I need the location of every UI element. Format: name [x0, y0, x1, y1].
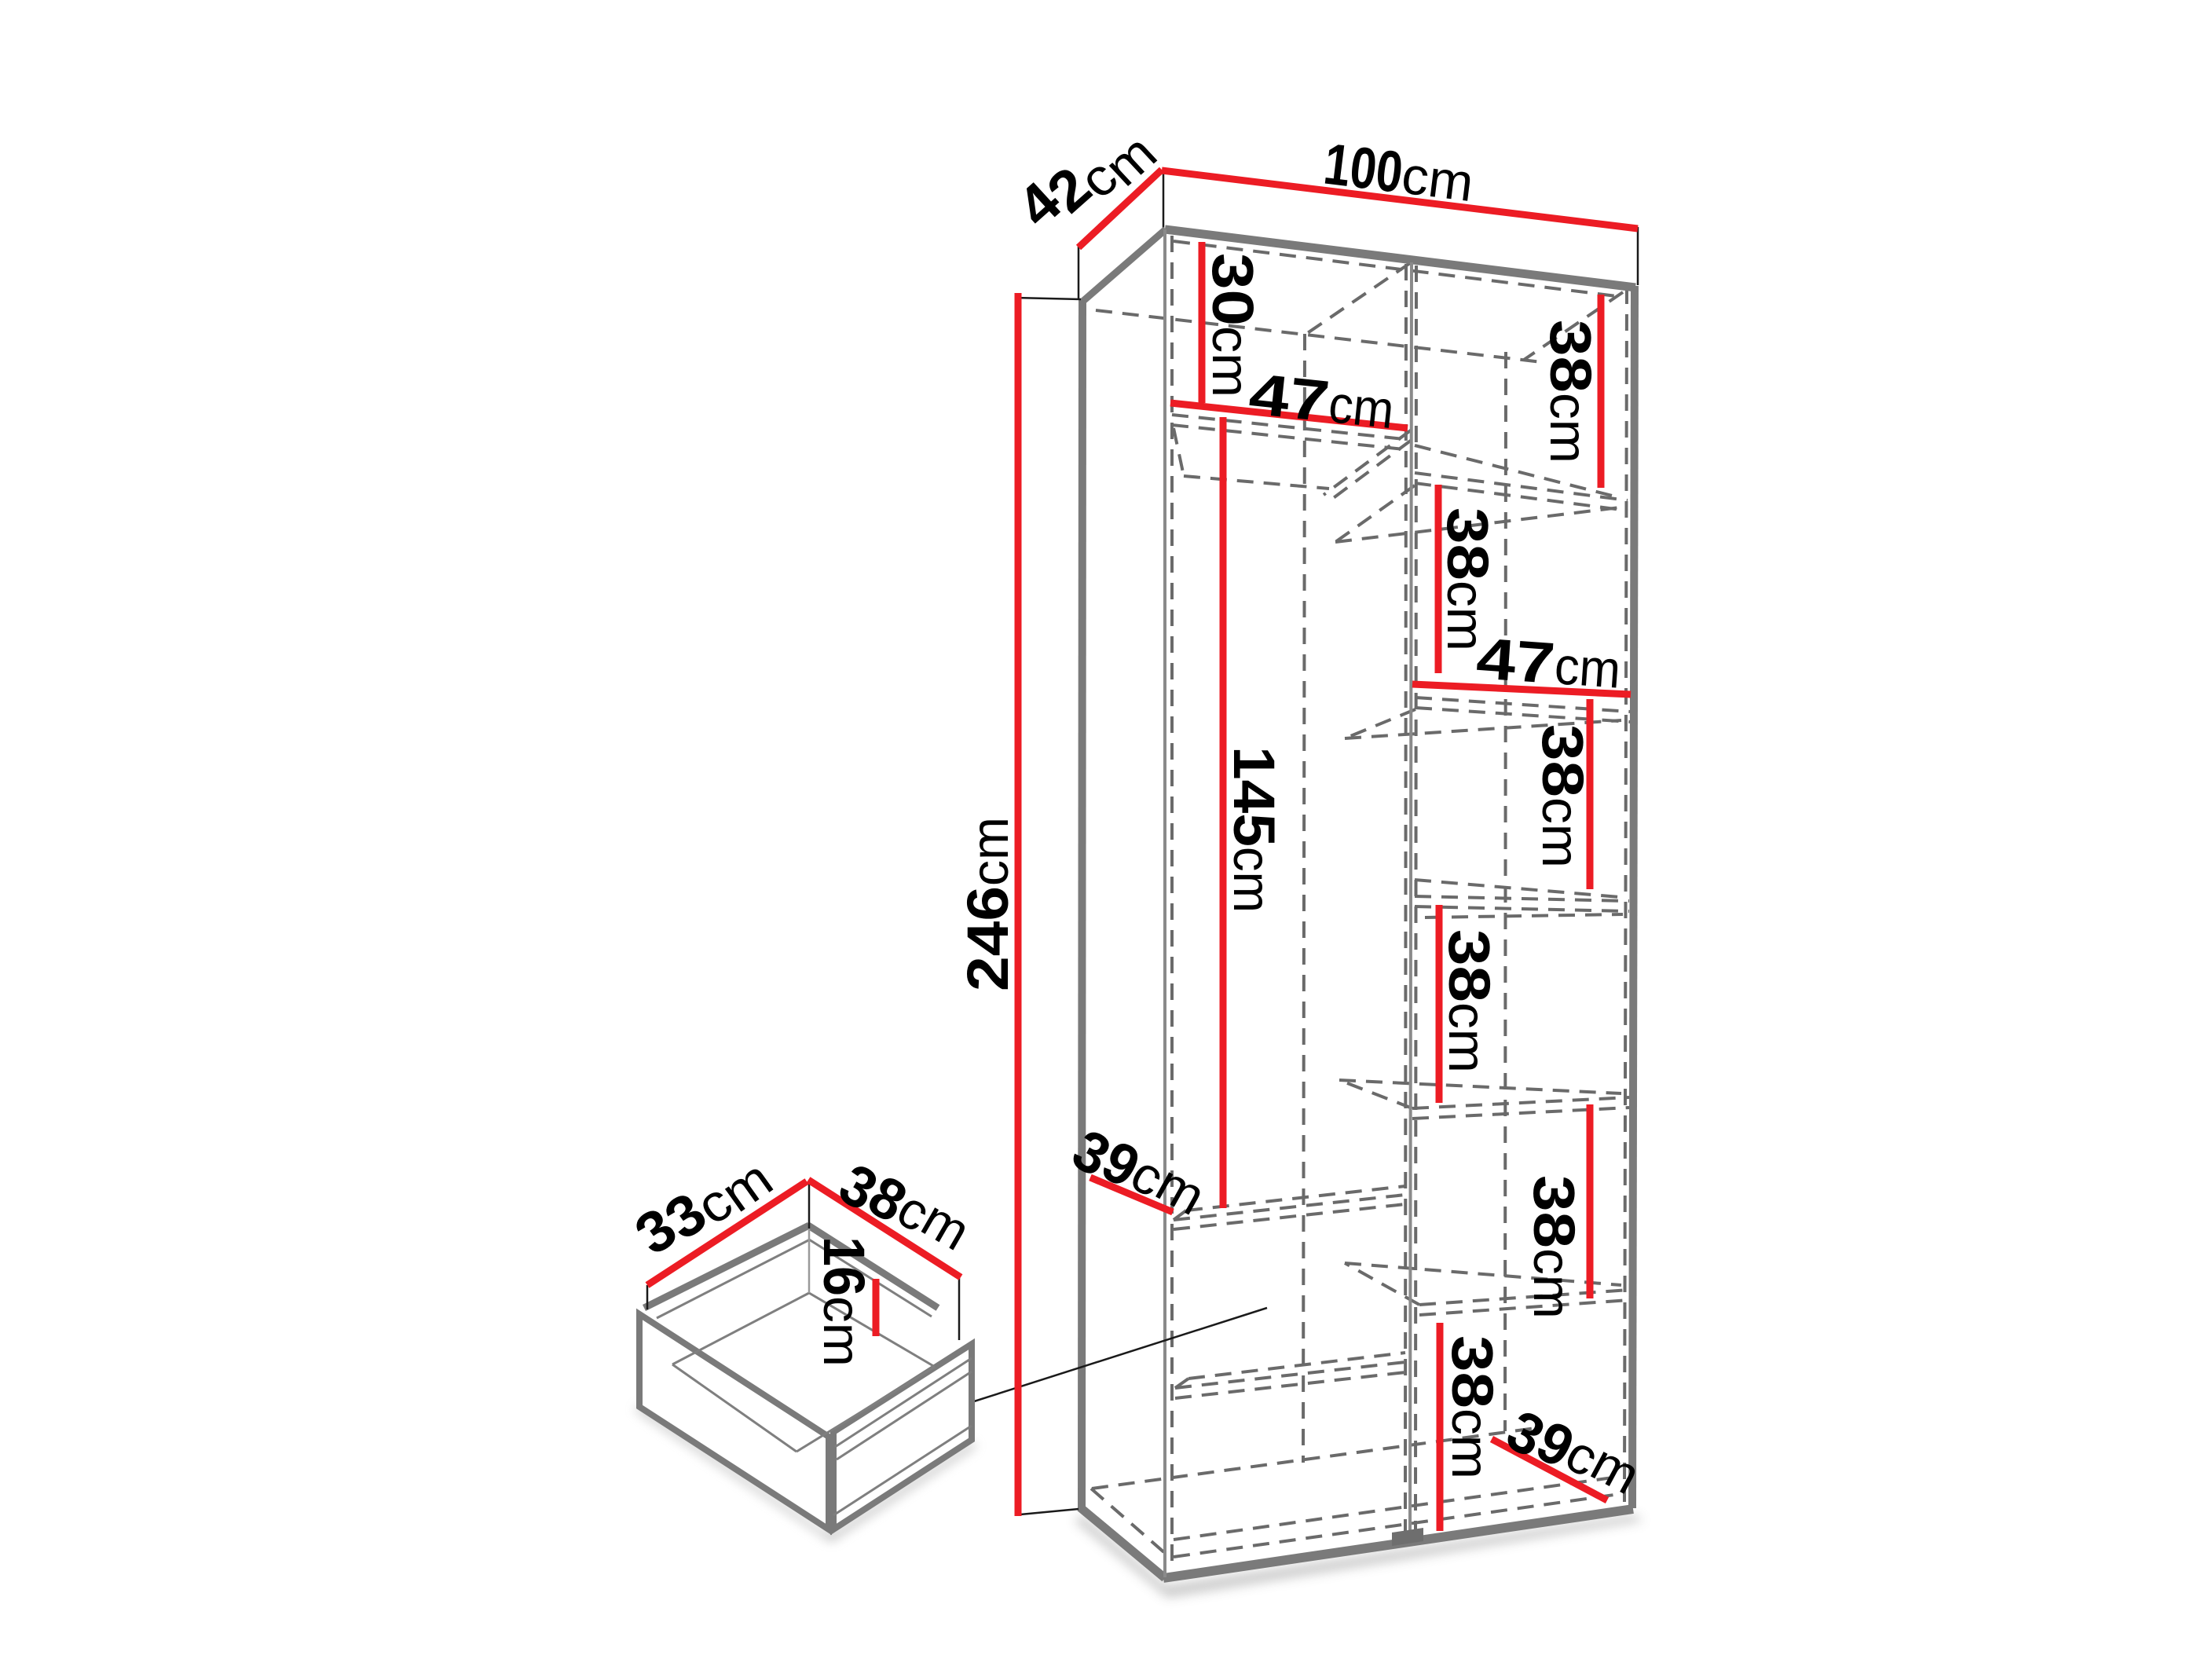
svg-text:38cm: 38cm: [1530, 724, 1595, 868]
svg-text:38cm: 38cm: [1440, 1335, 1505, 1479]
svg-text:16cm: 16cm: [811, 1236, 877, 1367]
svg-text:38cm: 38cm: [1522, 1175, 1587, 1319]
svg-text:38cm: 38cm: [1538, 320, 1603, 463]
svg-text:246cm: 246cm: [955, 817, 1020, 991]
svg-text:145cm: 145cm: [1221, 746, 1287, 913]
svg-text:38cm: 38cm: [1437, 929, 1502, 1073]
